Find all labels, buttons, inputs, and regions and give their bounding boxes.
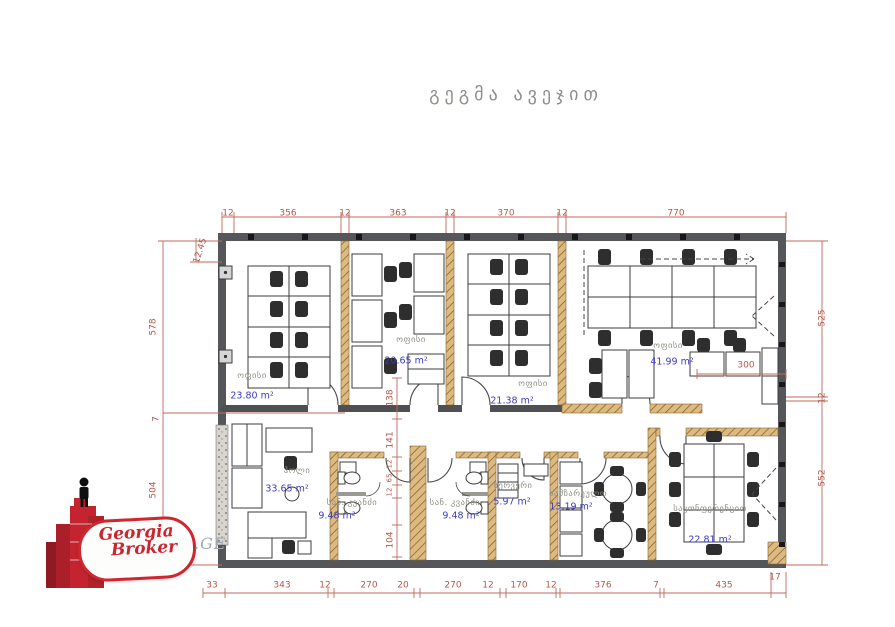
room-name-wc-1: სან. კვანძი bbox=[327, 499, 377, 508]
dim-label: 376 bbox=[594, 582, 611, 591]
room-name-office-2: ოფისი bbox=[396, 336, 425, 345]
floor-plan-page: გეგმა ავეჯით 12 356 12 363 12 370 12 770… bbox=[0, 0, 895, 627]
dim-label: 12 bbox=[339, 210, 350, 219]
room-area-server: 5.97 m² bbox=[493, 497, 530, 507]
dim-label: 552 bbox=[819, 469, 828, 486]
room-name-server: სერვერი bbox=[494, 482, 533, 491]
room-name-office-3: ოფისი bbox=[518, 380, 547, 389]
page-title: გეგმა ავეჯით bbox=[429, 86, 603, 104]
dim-label: 12 bbox=[444, 210, 455, 219]
dim-label: 578 bbox=[150, 318, 159, 335]
dim-label: 12 bbox=[545, 582, 556, 591]
dim-label: 270 bbox=[360, 582, 377, 591]
dim-label: 12 bbox=[387, 488, 394, 497]
dim-label: 12 bbox=[556, 210, 567, 219]
room-area-kitchen: 13.19 m² bbox=[549, 502, 592, 512]
room-area-hall: 33.65 m² bbox=[265, 484, 308, 494]
room-name-wc-2: სან. კვანძი bbox=[430, 499, 480, 508]
georgia-broker-logo: Georgia Broker .GE bbox=[40, 472, 250, 597]
room-area-wc-2: 9.48 m² bbox=[442, 511, 479, 521]
logo-domain-text: .GE bbox=[194, 534, 227, 553]
dim-label: 12 bbox=[222, 210, 233, 219]
dim-label: 343 bbox=[273, 582, 290, 591]
dim-label: 270 bbox=[444, 582, 461, 591]
logo-pill: Georgia Broker bbox=[76, 515, 197, 583]
room-area-office-1: 23.80 m² bbox=[230, 391, 273, 401]
room-name-office-4: ოფისი bbox=[653, 342, 682, 351]
dim-label: 138 bbox=[387, 389, 396, 406]
dim-label: 525 bbox=[819, 309, 828, 326]
dim-label: 7 bbox=[153, 416, 162, 422]
dim-label: 12 bbox=[387, 460, 394, 469]
room-name-kitchen: სამზარეულო bbox=[549, 490, 607, 499]
dim-label: 435 bbox=[715, 582, 732, 591]
room-name-hall: ჰოლი bbox=[284, 467, 310, 476]
dim-label: 370 bbox=[497, 210, 514, 219]
dim-label: 141 bbox=[387, 431, 396, 448]
room-area-conference: 22.81 m² bbox=[688, 535, 731, 545]
room-area-office-4: 41.99 m² bbox=[650, 357, 693, 367]
dim-label: 20 bbox=[397, 582, 408, 591]
dim-label: 65 bbox=[387, 474, 394, 483]
room-area-wc-1: 9.48 m² bbox=[318, 511, 355, 521]
dim-label: 12 bbox=[319, 582, 330, 591]
dim-label: 7 bbox=[653, 582, 659, 591]
room-area-office-3: 21.38 m² bbox=[490, 396, 533, 406]
dim-label: 300 bbox=[737, 362, 754, 371]
dim-label: 12 bbox=[819, 392, 828, 403]
dim-label: 170 bbox=[510, 582, 527, 591]
dim-label: 104 bbox=[387, 531, 396, 548]
dim-label: 356 bbox=[279, 210, 296, 219]
dim-label: 12 bbox=[482, 582, 493, 591]
room-name-office-1: ოფისი bbox=[237, 372, 266, 381]
dim-label: 17 bbox=[769, 574, 780, 583]
dim-label: 363 bbox=[389, 210, 406, 219]
room-area-office-2: 20.65 m² bbox=[384, 356, 427, 366]
room-name-conference: საკონფერენციო bbox=[673, 505, 747, 514]
dim-label: 770 bbox=[667, 210, 684, 219]
